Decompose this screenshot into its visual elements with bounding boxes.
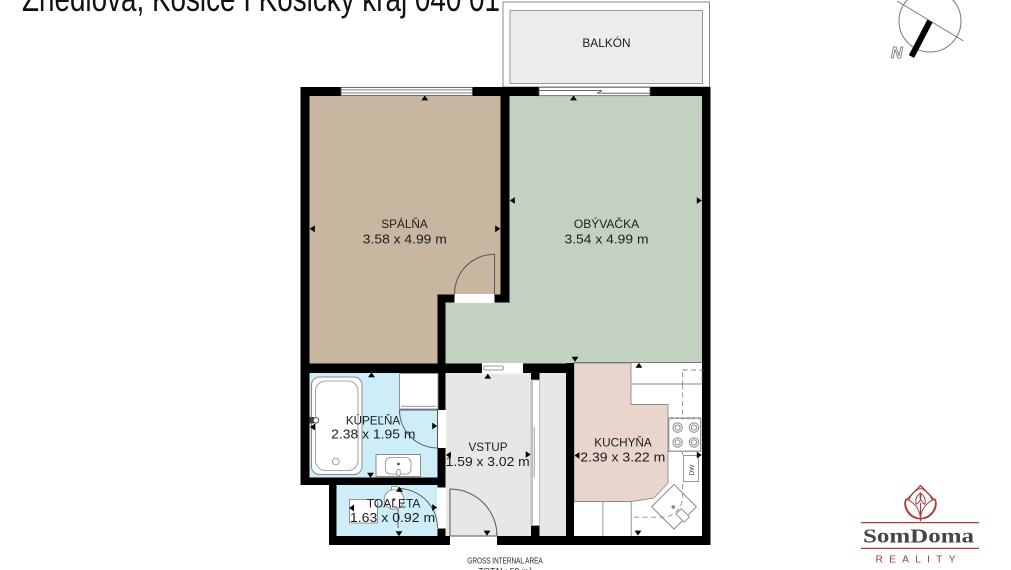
svg-text:KÚPEĽŇA: KÚPEĽŇA [346,414,401,427]
svg-text:SomDoma: SomDoma [863,526,974,548]
svg-text:GROSS INTERNAL AREA: GROSS INTERNAL AREA [467,556,543,566]
svg-text:3.58 x 4.99 m: 3.58 x 4.99 m [363,232,447,246]
svg-text:2.39 x 3.22 m: 2.39 x 3.22 m [580,450,665,464]
svg-text:2.38 x 1.95 m: 2.38 x 1.95 m [331,427,415,441]
svg-text:N: N [891,45,903,62]
svg-text:SPÁLŇA: SPÁLŇA [381,218,428,231]
svg-text:OBÝVAČKA: OBÝVAČKA [574,218,640,231]
svg-text:TOTAL: 59 m²: TOTAL: 59 m² [478,566,531,570]
svg-text:Znedlová, Košice I Košický kra: Znedlová, Košice I Košický kraj 040 01 [22,0,500,19]
svg-text:1.63 x 0.92 m: 1.63 x 0.92 m [350,511,435,525]
svg-text:REALITY: REALITY [876,555,961,566]
svg-text:KUCHYŇA: KUCHYŇA [594,437,652,450]
svg-text:DW: DW [689,464,696,476]
svg-text:VSTUP: VSTUP [469,442,508,454]
svg-text:BALKÓN: BALKÓN [582,37,630,50]
svg-text:1.59 x 3.02 m: 1.59 x 3.02 m [446,455,530,469]
svg-text:3.54 x 4.99 m: 3.54 x 4.99 m [565,232,649,246]
svg-text:TOALETA: TOALETA [367,498,421,510]
